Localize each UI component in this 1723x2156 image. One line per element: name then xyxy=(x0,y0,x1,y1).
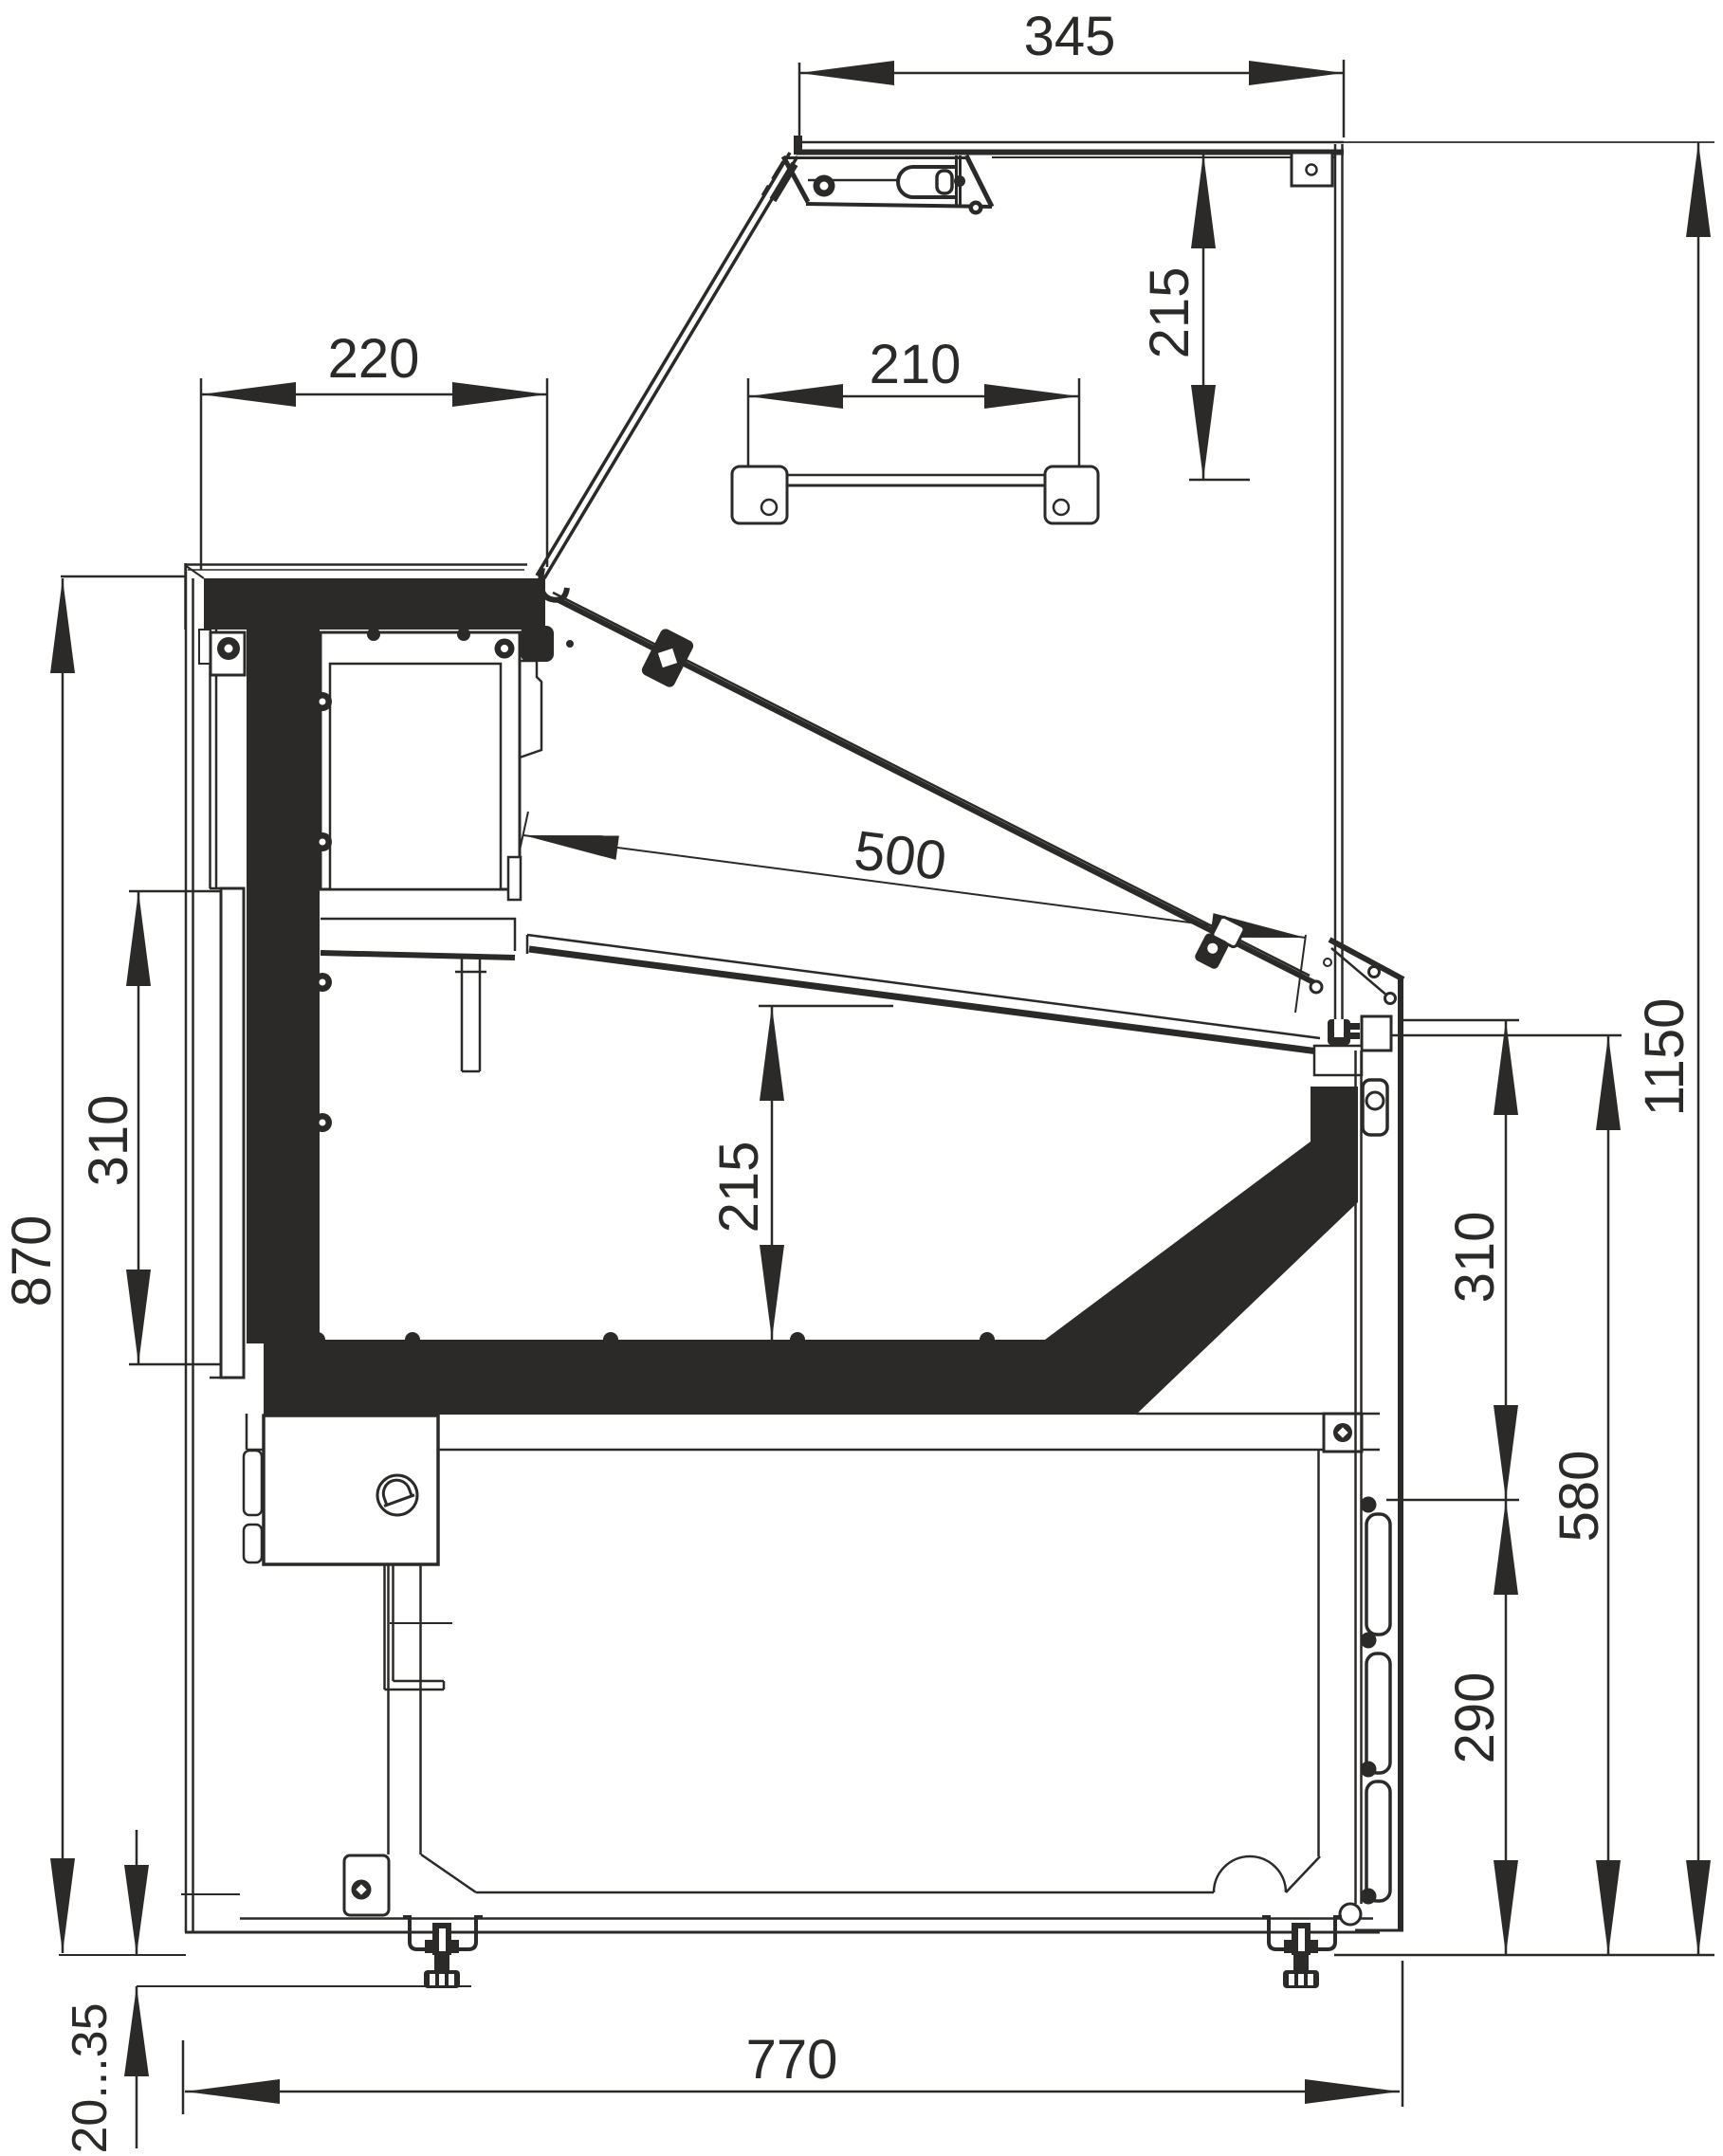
svg-text:580: 580 xyxy=(1549,1451,1610,1543)
svg-text:310: 310 xyxy=(78,1095,139,1187)
svg-text:770: 770 xyxy=(746,2029,838,2091)
svg-text:345: 345 xyxy=(1024,6,1116,67)
svg-text:220: 220 xyxy=(328,328,420,390)
svg-text:290: 290 xyxy=(1444,1672,1506,1764)
svg-text:310: 310 xyxy=(1444,1212,1506,1304)
svg-text:500: 500 xyxy=(851,819,949,892)
svg-text:1150: 1150 xyxy=(1634,998,1696,1117)
svg-text:215: 215 xyxy=(1139,267,1201,359)
svg-text:870: 870 xyxy=(1,1215,63,1307)
svg-text:20...35: 20...35 xyxy=(63,2002,118,2153)
svg-text:215: 215 xyxy=(708,1142,770,1233)
svg-text:210: 210 xyxy=(870,334,962,395)
